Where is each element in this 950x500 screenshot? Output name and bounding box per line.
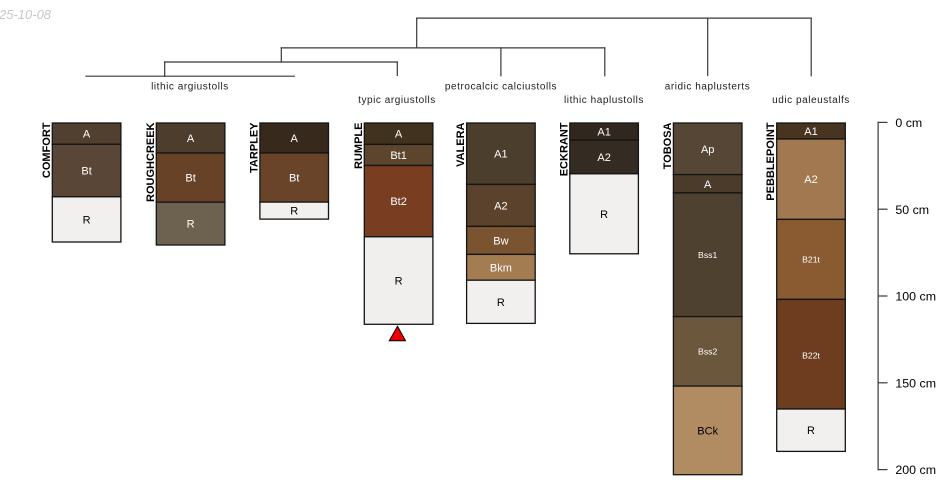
svg-text:PEBBLEPOINT: PEBBLEPOINT [765,122,777,201]
svg-text:R: R [187,219,195,231]
svg-text:Bss1: Bss1 [698,250,717,260]
svg-text:A: A [704,179,712,191]
svg-text:A: A [83,129,91,141]
svg-text:A1: A1 [494,149,507,161]
svg-text:A2: A2 [597,152,610,164]
svg-text:typic argiustolls: typic argiustolls [358,95,436,106]
svg-text:Bt: Bt [185,173,195,185]
svg-text:BCk: BCk [697,425,718,437]
svg-text:lithic argiustolls: lithic argiustolls [151,82,229,93]
svg-text:aridic haplusterts: aridic haplusterts [665,82,751,93]
svg-text:100 cm: 100 cm [895,290,936,304]
svg-text:A: A [291,133,299,145]
svg-text:Bw: Bw [493,235,508,247]
svg-text:R: R [290,206,298,218]
svg-text:A1: A1 [804,126,817,138]
svg-text:0 cm: 0 cm [895,116,922,130]
svg-text:udic paleustalfs: udic paleustalfs [772,95,850,106]
svg-text:150 cm: 150 cm [895,376,936,390]
svg-text:200 cm: 200 cm [895,463,936,477]
svg-text:R: R [497,297,505,309]
svg-text:50 cm: 50 cm [895,203,929,217]
svg-text:TOBOSA: TOBOSA [662,122,674,169]
svg-text:TARPLEY: TARPLEY [248,122,260,173]
svg-text:Bt2: Bt2 [390,196,407,208]
svg-text:A2: A2 [494,200,507,212]
svg-text:Bt: Bt [81,166,91,178]
svg-text:B22t: B22t [802,350,820,360]
svg-text:A: A [395,129,403,141]
svg-text:ECKRANT: ECKRANT [558,122,570,176]
svg-text:25-10-08: 25-10-08 [0,7,52,22]
svg-text:A1: A1 [597,127,610,139]
svg-text:R: R [600,209,608,221]
svg-text:petrocalcic calciustolls: petrocalcic calciustolls [445,82,557,93]
svg-text:VALERA: VALERA [455,122,467,166]
svg-text:lithic haplustolls: lithic haplustolls [564,95,644,106]
svg-text:R: R [395,276,403,288]
svg-text:ROUGHCREEK: ROUGHCREEK [145,122,157,202]
svg-text:A2: A2 [804,174,817,186]
svg-text:R: R [807,425,815,437]
svg-text:A: A [187,133,195,145]
svg-text:B21t: B21t [802,254,820,264]
svg-text:Bt1: Bt1 [390,150,407,162]
svg-text:RUMPLE: RUMPLE [353,123,365,169]
svg-text:Bt: Bt [289,173,299,185]
svg-text:Bss2: Bss2 [698,347,717,357]
svg-text:R: R [83,214,91,226]
svg-text:COMFORT: COMFORT [41,122,53,178]
svg-text:Ap: Ap [701,144,714,156]
svg-text:Bkm: Bkm [490,262,512,274]
